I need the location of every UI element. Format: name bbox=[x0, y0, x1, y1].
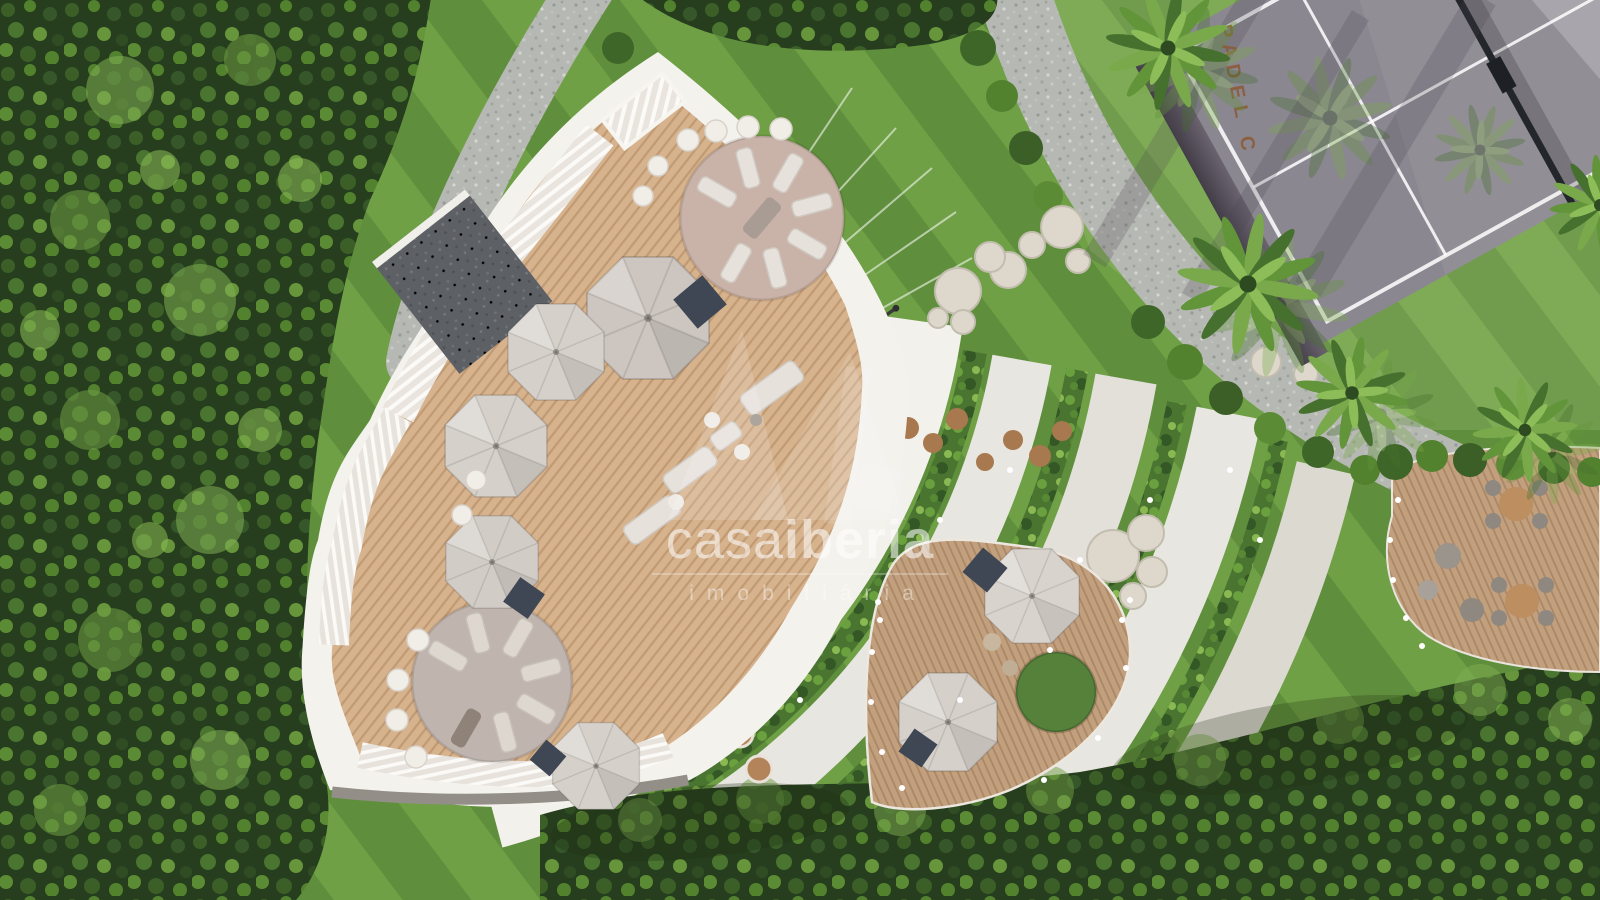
deck-pouf bbox=[983, 633, 1001, 651]
lounge-circle-bottom bbox=[412, 602, 572, 762]
lounge-circle-top bbox=[680, 136, 844, 300]
deck-pouf bbox=[1418, 580, 1438, 600]
site-render-canvas: PADEL C bbox=[0, 0, 1600, 900]
watermark-brand: casaiberia bbox=[666, 510, 934, 570]
deck-pouf bbox=[1002, 660, 1018, 676]
deck-pouf bbox=[1435, 543, 1461, 569]
aerial-render-resort-siteplan: PADEL C bbox=[0, 0, 1600, 900]
watermark-subtitle: imobiliária bbox=[689, 582, 927, 605]
deck-pouf bbox=[1460, 598, 1484, 622]
